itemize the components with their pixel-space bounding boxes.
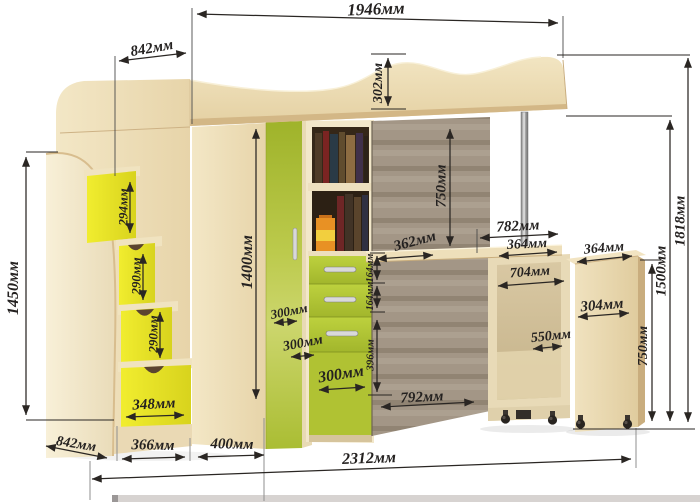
dim-366: 366мм (131, 438, 174, 454)
dim-1400: 1400мм (240, 235, 256, 289)
shelf-drawer-column (306, 120, 374, 443)
dim-302: 302мм (372, 63, 386, 103)
dim-2312: 2312мм (342, 450, 396, 468)
dim-1946: 1946мм (347, 0, 405, 18)
dim-348: 348мм (132, 396, 176, 413)
dim-290-b: 290мм (147, 315, 160, 352)
dim-1500: 1500мм (655, 246, 670, 297)
dim-396: 396мм (366, 339, 377, 371)
dim-782: 782мм (496, 218, 540, 235)
dim-164-a: 164мм (366, 254, 376, 283)
side-cabinet (566, 250, 646, 432)
dim-364-a: 364мм (507, 237, 548, 253)
dim-290-a: 290мм (130, 257, 143, 294)
dim-792: 792мм (400, 389, 444, 406)
dim-1818: 1818мм (674, 196, 689, 247)
floor-strip (112, 495, 700, 502)
dim-750-right: 750мм (637, 326, 651, 366)
furniture-dimension-drawing: 1946мм 842мм 302мм 1450мм 294мм 290мм 29… (0, 0, 700, 502)
dim-164-b: 164мм (366, 282, 376, 311)
dim-294: 294мм (117, 188, 130, 225)
dim-1450: 1450мм (6, 261, 22, 315)
dim-704: 704мм (509, 265, 550, 282)
dim-750-mid: 750мм (435, 164, 450, 207)
dim-400: 400мм (210, 437, 253, 453)
